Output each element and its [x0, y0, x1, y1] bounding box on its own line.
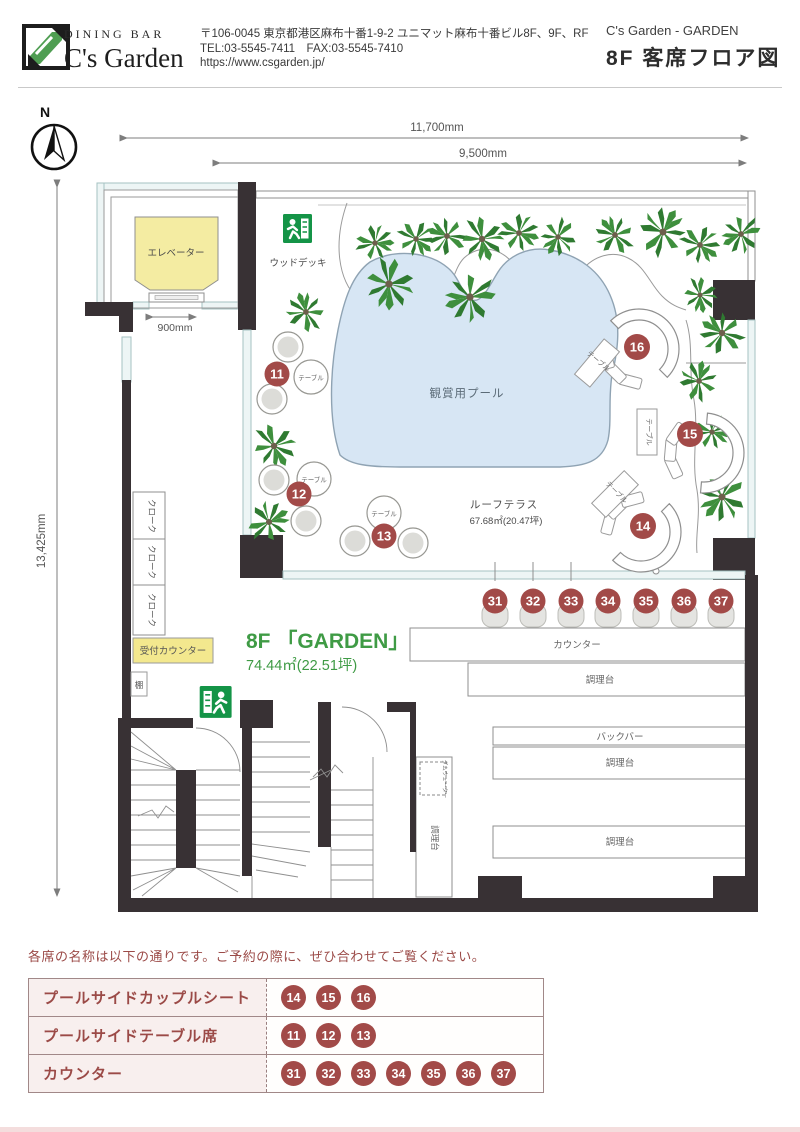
prep-label: 調理台: [586, 674, 615, 686]
legend-row-counter: カウンター 31 32 33 34 35 36 37: [29, 1055, 543, 1092]
seat-badge: 33: [564, 594, 578, 609]
bar-counters: [410, 628, 746, 897]
seat-legend: 各席の名称は以下の通りです。ご予約の際に、ぜひ合わせてご覧ください。 プールサイ…: [28, 946, 544, 1093]
wood-deck-label: ウッドデッキ: [269, 257, 326, 269]
cloak-label: クローク: [147, 499, 157, 533]
document-title-en: C's Garden - GARDEN: [606, 23, 780, 38]
counter-seats: 31 32 33 34 35 36 37: [482, 589, 734, 628]
floor-plan: N 11,700mm 9,500mm 13,425mm 900mm エレベーター: [0, 95, 800, 940]
elevator-label: エレベーター: [147, 248, 204, 259]
address-block: 〒106-0045 東京都港区麻布十番1-9-2 ユニマット麻布十番ビル8F、9…: [200, 27, 589, 71]
seat-badge: 31: [488, 594, 502, 609]
brand-name: C's Garden: [64, 43, 184, 74]
dimension-width-total: 11,700mm: [410, 122, 463, 134]
legend-row-label: カウンター: [29, 1055, 266, 1092]
header-divider: [18, 87, 782, 88]
footer-accent-strip: [0, 1127, 800, 1132]
cloak-label: クローク: [147, 593, 157, 627]
seat-badge: 32: [526, 594, 540, 609]
dumbwaiter-label: ダムウェーター: [441, 760, 449, 799]
back-bar-label: バックバー: [596, 732, 643, 743]
brand-block: DINING BAR C's Garden: [64, 27, 184, 74]
tel-fax: TEL:03-5545-7411 FAX:03-5545-7410: [200, 42, 589, 57]
document-title-jp: 8F 客席フロア図: [606, 42, 780, 72]
seat-badge: 37: [714, 594, 728, 609]
poolside-table-11: テーブル 11: [257, 332, 328, 414]
seat-badge: 15: [683, 427, 697, 442]
seat-chip: 37: [491, 1061, 516, 1086]
cloak-area: クローク クローク クローク: [133, 492, 165, 635]
prep-label: 調理台: [430, 825, 440, 851]
garden-name-label: 8F 「GARDEN」: [246, 630, 409, 653]
seat-badge: 34: [601, 594, 616, 609]
stairwell: [118, 700, 416, 912]
dimension-height-total: 13,425mm: [36, 514, 48, 568]
table-label: テーブル: [301, 475, 327, 484]
legend-table: プールサイドカップルシート 14 15 16 プールサイドテーブル席 11 12…: [28, 978, 544, 1093]
prep-label: 調理台: [606, 836, 635, 848]
header: DINING BAR C's Garden 〒106-0045 東京都港区麻布十…: [0, 0, 800, 88]
legend-row-label: プールサイドテーブル席: [29, 1017, 266, 1054]
seat-badge: 13: [377, 529, 391, 544]
exit-sign-icon: [283, 214, 312, 243]
terrace-area-label: 67.68㎡(20.47坪): [470, 515, 543, 527]
pool-label: 観賞用プール: [430, 386, 505, 400]
seat-badge: 12: [292, 487, 306, 502]
poolside-table-13: テーブル 13: [340, 496, 428, 558]
seat-chip: 35: [421, 1061, 446, 1086]
seat-badge: 36: [677, 594, 691, 609]
elevator-area: エレベーター: [85, 183, 240, 332]
compass-north-label: N: [40, 104, 50, 120]
couple-seat-15: テーブル 15: [637, 409, 747, 496]
brand-tagline: DINING BAR: [64, 27, 184, 42]
legend-note: 各席の名称は以下の通りです。ご予約の際に、ぜひ合わせてご覧ください。: [28, 946, 544, 965]
seat-chip: 32: [316, 1061, 341, 1086]
shelf-label: 棚: [135, 680, 144, 690]
postal-address: 〒106-0045 東京都港区麻布十番1-9-2 ユニマット麻布十番ビル8F、9…: [200, 27, 589, 42]
seat-badge: 14: [636, 519, 651, 534]
counter-label: カウンター: [553, 640, 601, 651]
table-label: テーブル: [645, 418, 654, 446]
seat-chip: 34: [386, 1061, 411, 1086]
reception-counter: 受付カウンター: [133, 638, 213, 663]
website-url: https://www.csgarden.jp/: [200, 56, 589, 71]
floor-plan-page: DINING BAR C's Garden 〒106-0045 東京都港区麻布十…: [0, 0, 800, 1132]
dimension-elevator-door: 900mm: [157, 322, 192, 334]
seat-chip: 11: [281, 1023, 306, 1048]
ornamental-pool: [332, 249, 618, 467]
table-label: テーブル: [371, 509, 397, 518]
seat-chip: 31: [281, 1061, 306, 1086]
seat-badge: 16: [630, 340, 644, 355]
seat-chip: 15: [316, 985, 341, 1010]
terrace-name-label: ルーフテラス: [470, 499, 538, 511]
seat-badge: 35: [639, 594, 653, 609]
table-label: テーブル: [298, 373, 324, 382]
prep-label: 調理台: [606, 757, 635, 769]
reception-label: 受付カウンター: [140, 645, 207, 657]
seat-chip: 14: [281, 985, 306, 1010]
seat-chip: 16: [351, 985, 376, 1010]
legend-row-couple: プールサイドカップルシート 14 15 16: [29, 979, 543, 1017]
seat-chip: 13: [351, 1023, 376, 1048]
legend-row-table: プールサイドテーブル席 11 12 13: [29, 1017, 543, 1055]
seat-chip: 36: [456, 1061, 481, 1086]
exit-sign-icon: [200, 686, 232, 718]
seat-chip: 12: [316, 1023, 341, 1048]
document-title-block: C's Garden - GARDEN 8F 客席フロア図: [606, 23, 780, 72]
garden-area-label: 74.44㎡(22.51坪): [246, 657, 357, 674]
compass-icon: N: [32, 104, 76, 169]
cloak-label: クローク: [147, 545, 157, 579]
legend-row-label: プールサイドカップルシート: [29, 979, 266, 1016]
dimension-width-terrace: 9,500mm: [459, 148, 507, 160]
seat-badge: 11: [270, 367, 284, 382]
seat-chip: 33: [351, 1061, 376, 1086]
